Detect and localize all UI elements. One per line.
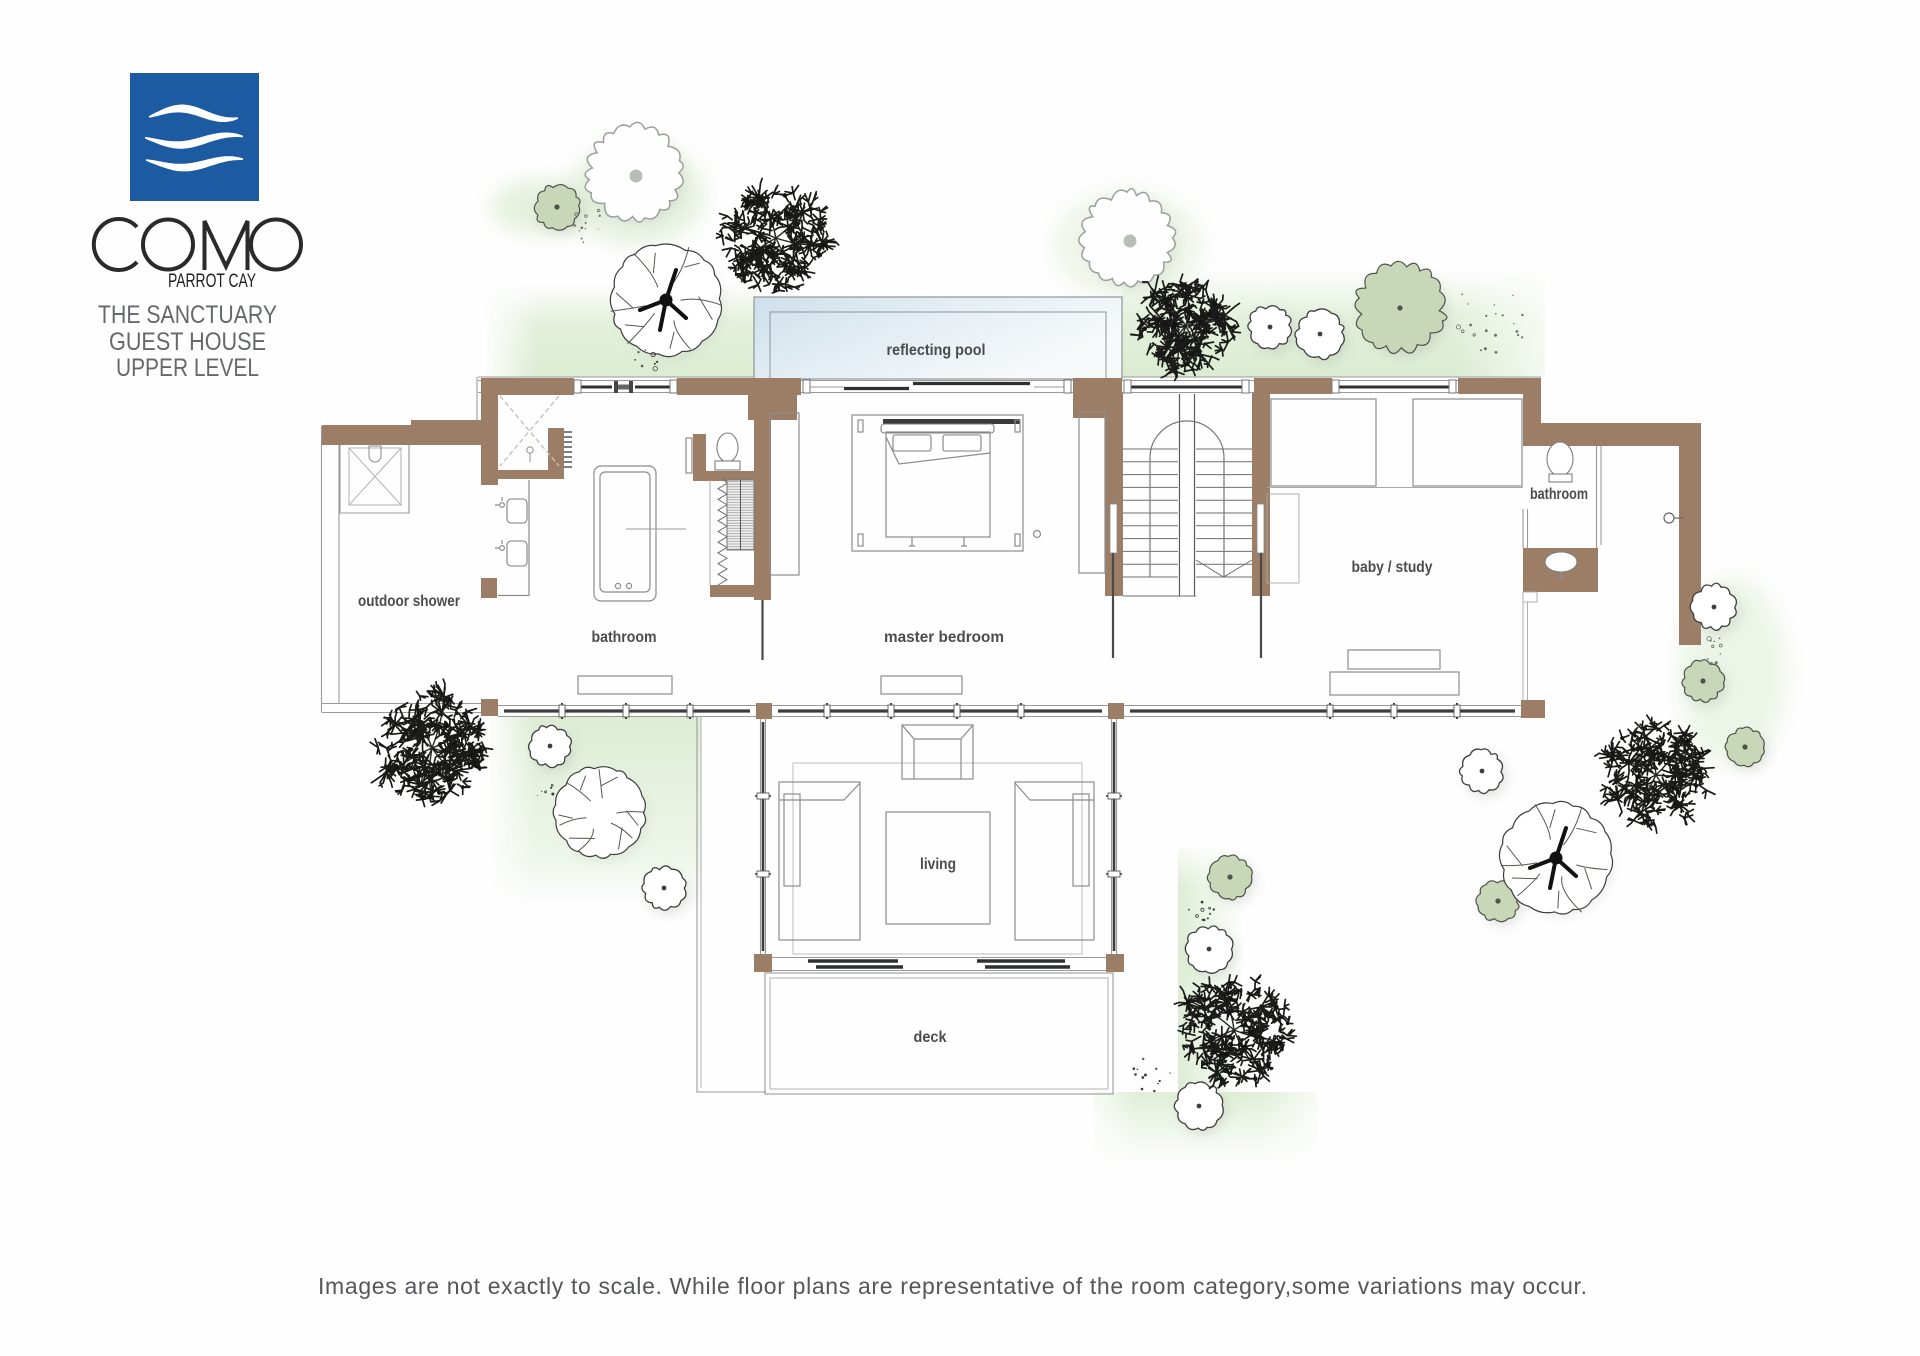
svg-text:bathroom: bathroom	[1530, 486, 1588, 503]
svg-text:outdoor shower: outdoor shower	[358, 593, 460, 610]
svg-text:THE SANCTUARY: THE SANCTUARY	[98, 301, 277, 329]
svg-text:Images are not exactly to scal: Images are not exactly to scale. While f…	[318, 1273, 1587, 1299]
svg-text:UPPER LEVEL: UPPER LEVEL	[116, 354, 259, 382]
svg-text:baby / study: baby / study	[1352, 559, 1433, 576]
svg-text:GUEST HOUSE: GUEST HOUSE	[109, 328, 266, 356]
svg-text:reflecting pool: reflecting pool	[887, 342, 986, 359]
svg-text:master bedroom: master bedroom	[884, 629, 1004, 646]
svg-text:deck: deck	[914, 1029, 947, 1046]
svg-text:bathroom: bathroom	[592, 629, 657, 646]
svg-text:PARROT CAY: PARROT CAY	[168, 271, 256, 292]
svg-text:living: living	[920, 856, 956, 873]
